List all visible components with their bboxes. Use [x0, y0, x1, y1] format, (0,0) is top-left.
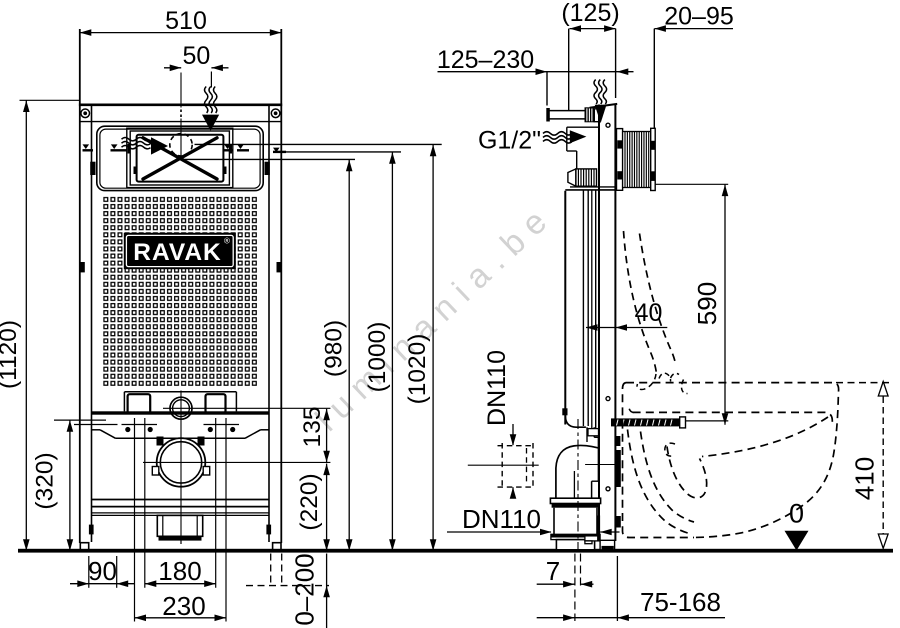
- svg-text:(220): (220): [296, 473, 323, 530]
- svg-text:(320): (320): [32, 452, 59, 509]
- svg-text:7: 7: [546, 556, 560, 586]
- svg-text:75-168: 75-168: [640, 587, 721, 617]
- svg-text:180: 180: [158, 556, 201, 586]
- svg-text:0–200: 0–200: [290, 553, 320, 625]
- svg-text:(1120): (1120): [0, 320, 22, 389]
- svg-text:410: 410: [850, 457, 880, 500]
- svg-text:(125): (125): [561, 0, 619, 27]
- svg-text:DN110: DN110: [462, 504, 541, 534]
- svg-text:(1000): (1000): [364, 322, 391, 393]
- svg-text:510: 510: [165, 7, 207, 35]
- svg-text:125–230: 125–230: [437, 46, 534, 74]
- svg-text:90: 90: [88, 556, 117, 586]
- svg-text:0: 0: [789, 498, 804, 528]
- svg-text:DN110: DN110: [483, 350, 511, 426]
- svg-text:G1/2": G1/2": [478, 127, 541, 155]
- svg-text:(980): (980): [321, 320, 348, 377]
- svg-text:590: 590: [692, 282, 722, 325]
- svg-text:(1020): (1020): [404, 334, 431, 405]
- svg-text:135: 135: [299, 407, 326, 448]
- svg-text:20–95: 20–95: [664, 2, 734, 30]
- svg-text:RAVAK: RAVAK: [133, 239, 221, 266]
- svg-text:230: 230: [162, 591, 205, 621]
- svg-text:®: ®: [224, 237, 230, 246]
- svg-text:40: 40: [635, 299, 663, 327]
- svg-text:50: 50: [182, 42, 210, 70]
